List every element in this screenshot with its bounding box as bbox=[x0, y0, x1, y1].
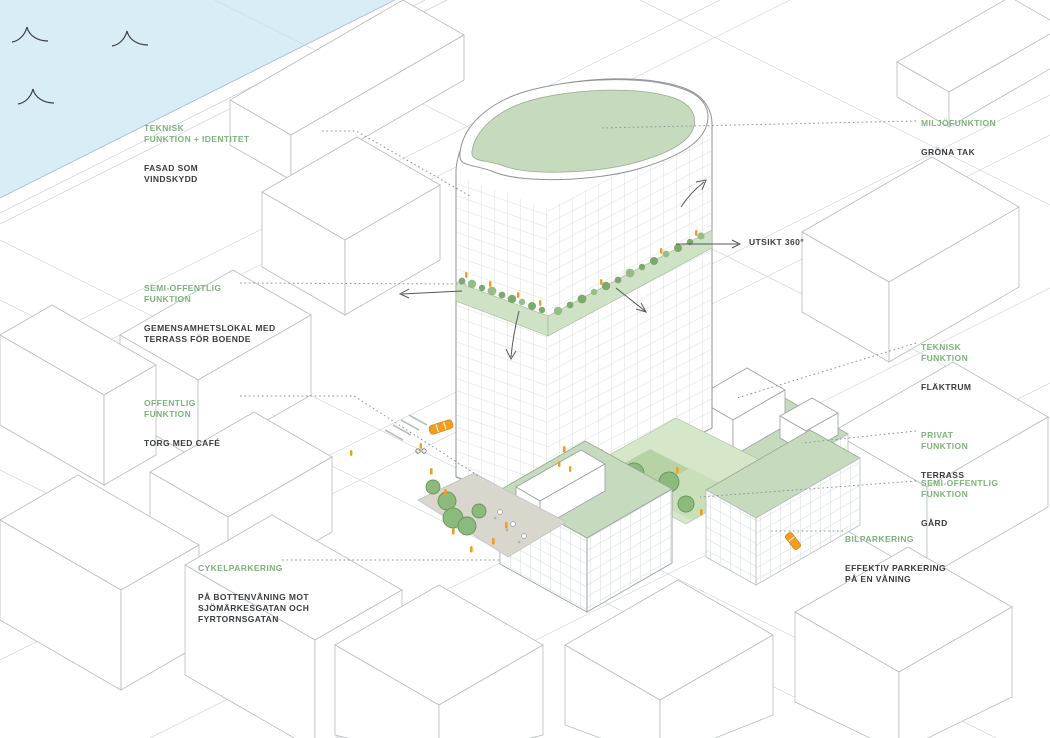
diagram-canvas: TEKNISK FUNKTION + IDENTITET FASAD SOM V… bbox=[0, 0, 1050, 738]
annotation-public: OFFENTLIG FUNKTION TORG MED CAFÉ bbox=[144, 387, 294, 460]
annotation-body: FASAD SOM VINDSKYDD bbox=[144, 163, 294, 185]
annotation-environment: MILJÖFUNKTION GRÖNA TAK bbox=[921, 107, 1050, 169]
annotation-body: PÅ BOTTENVÅNING MOT SJÖMÄRKESGATAN OCH F… bbox=[198, 592, 348, 625]
annotation-heading: MILJÖFUNKTION bbox=[921, 118, 1050, 129]
annotation-heading: BILPARKERING bbox=[845, 534, 995, 545]
crosswalk bbox=[385, 415, 427, 440]
annotation-community: SEMI-OFFENTLIG FUNKTION GEMENSAMHETSLOKA… bbox=[144, 272, 294, 356]
annotation-body: GEMENSAMHETSLOKAL MED TERRASS FÖR BOENDE bbox=[144, 323, 294, 345]
annotation-heading: SEMI-OFFENTLIG FUNKTION bbox=[144, 283, 294, 305]
scene-drawing bbox=[0, 0, 1050, 738]
annotation-body: TORG MED CAFÉ bbox=[144, 438, 294, 449]
annotation-facade: TEKNISK FUNKTION + IDENTITET FASAD SOM V… bbox=[144, 112, 294, 196]
annotation-car-parking: BILPARKERING EFFEKTIV PARKERING PÅ EN VÅ… bbox=[845, 523, 995, 596]
annotation-bike-parking: CYKELPARKERING PÅ BOTTENVÅNING MOT SJÖMÄ… bbox=[198, 552, 348, 636]
annotation-technical: TEKNISK FUNKTION FLÄKTRUM bbox=[921, 331, 1050, 404]
annotation-heading: PRIVAT FUNKTION bbox=[921, 430, 1050, 452]
arrow-left-icon bbox=[400, 289, 462, 298]
annotation-heading: TEKNISK FUNKTION + IDENTITET bbox=[144, 123, 294, 145]
annotation-body: EFFEKTIV PARKERING PÅ EN VÅNING bbox=[845, 563, 995, 585]
annotation-heading: OFFENTLIG FUNKTION bbox=[144, 398, 294, 420]
annotation-heading: TEKNISK FUNKTION bbox=[921, 342, 1050, 364]
annotation-heading: CYKELPARKERING bbox=[198, 563, 348, 574]
annotation-heading: SEMI-OFFENTLIG FUNKTION bbox=[921, 478, 1050, 500]
annotation-body: FLÄKTRUM bbox=[921, 382, 1050, 393]
annotation-body: GRÖNA TAK bbox=[921, 147, 1050, 158]
view-callout: UTSIKT 360° bbox=[749, 237, 804, 247]
